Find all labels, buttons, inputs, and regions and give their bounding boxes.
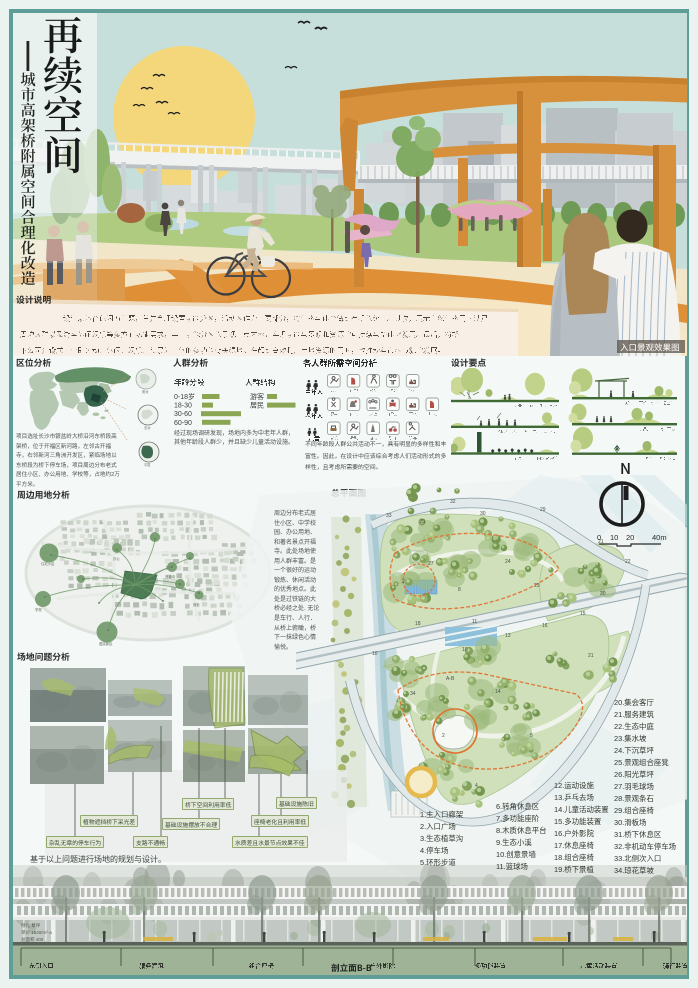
svg-text:30-60: 30-60 [174, 411, 192, 418]
svg-text:13: 13 [505, 633, 511, 639]
svg-text:15: 15 [580, 611, 586, 617]
svg-text:20: 20 [600, 591, 606, 597]
svg-text:20: 20 [626, 533, 634, 542]
svg-text:居民: 居民 [250, 402, 264, 410]
svg-text:游客: 游客 [250, 392, 264, 401]
svg-text:4: 4 [475, 783, 478, 789]
svg-text:21: 21 [588, 653, 594, 659]
svg-text:16: 16 [542, 623, 548, 629]
svg-text:亚洲: 亚洲 [144, 426, 150, 430]
svg-text:2: 2 [402, 579, 405, 585]
svg-text:美洲: 美洲 [142, 389, 148, 394]
svg-text:34: 34 [410, 691, 416, 697]
svg-text:40m: 40m [652, 533, 667, 542]
svg-text:A-B: A-B [446, 676, 455, 682]
svg-text:24: 24 [505, 559, 511, 565]
svg-text:8: 8 [458, 587, 461, 593]
svg-text:18-30: 18-30 [174, 403, 192, 410]
svg-text:60-90: 60-90 [174, 420, 192, 427]
svg-text:27: 27 [428, 561, 434, 567]
svg-text:住宅小区: 住宅小区 [41, 561, 55, 566]
svg-text:10: 10 [462, 647, 468, 653]
svg-text:10: 10 [610, 533, 618, 542]
svg-text:18: 18 [415, 621, 421, 627]
svg-text:5: 5 [530, 733, 533, 739]
svg-text:10: 10 [372, 651, 378, 657]
svg-text:0: 0 [597, 533, 601, 542]
svg-text:2: 2 [442, 733, 445, 739]
svg-text:23: 23 [534, 583, 540, 589]
svg-text:22: 22 [625, 559, 631, 565]
svg-text:11: 11 [472, 619, 477, 625]
svg-text:14: 14 [495, 689, 501, 695]
svg-text:学校: 学校 [35, 607, 42, 612]
svg-text:0-18岁: 0-18岁 [174, 392, 195, 401]
